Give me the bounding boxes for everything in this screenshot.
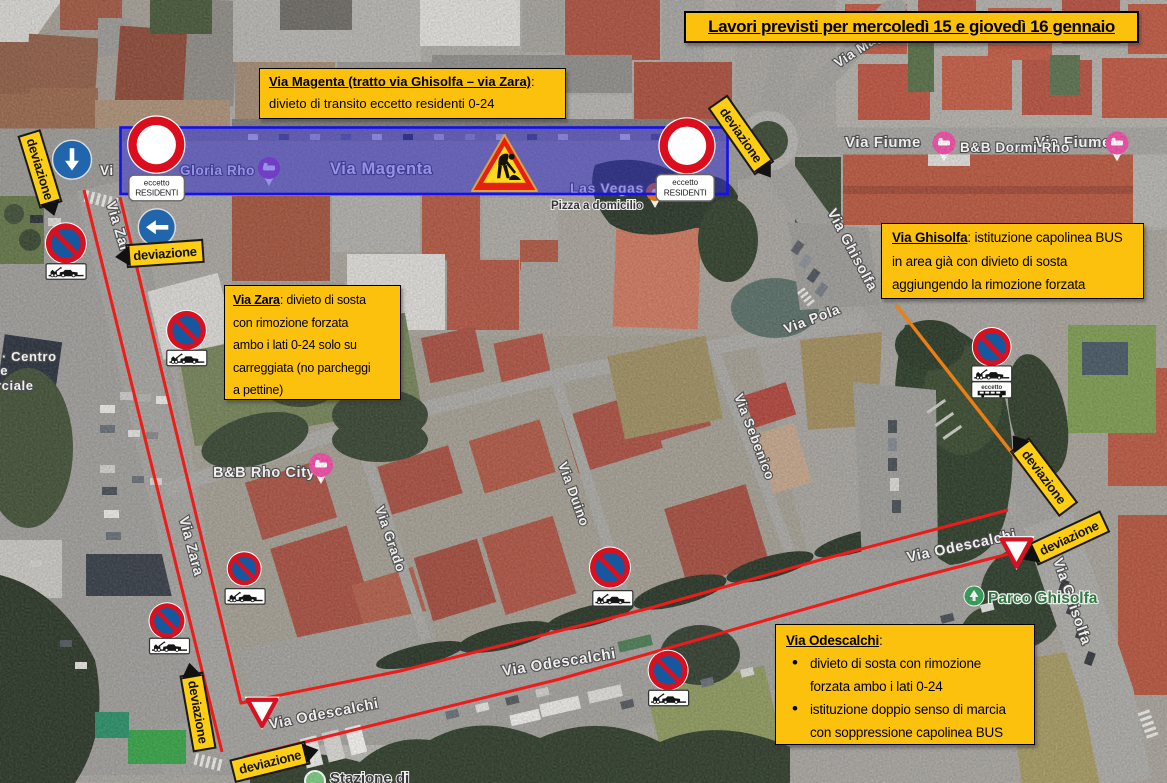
svg-text:eccetto: eccetto (672, 178, 698, 187)
svg-text:eccetto: eccetto (144, 178, 170, 187)
svg-text:RESIDENTI: RESIDENTI (135, 188, 178, 198)
svg-text:RESIDENTI: RESIDENTI (664, 188, 707, 198)
svg-text:eccetto: eccetto (981, 385, 1002, 391)
